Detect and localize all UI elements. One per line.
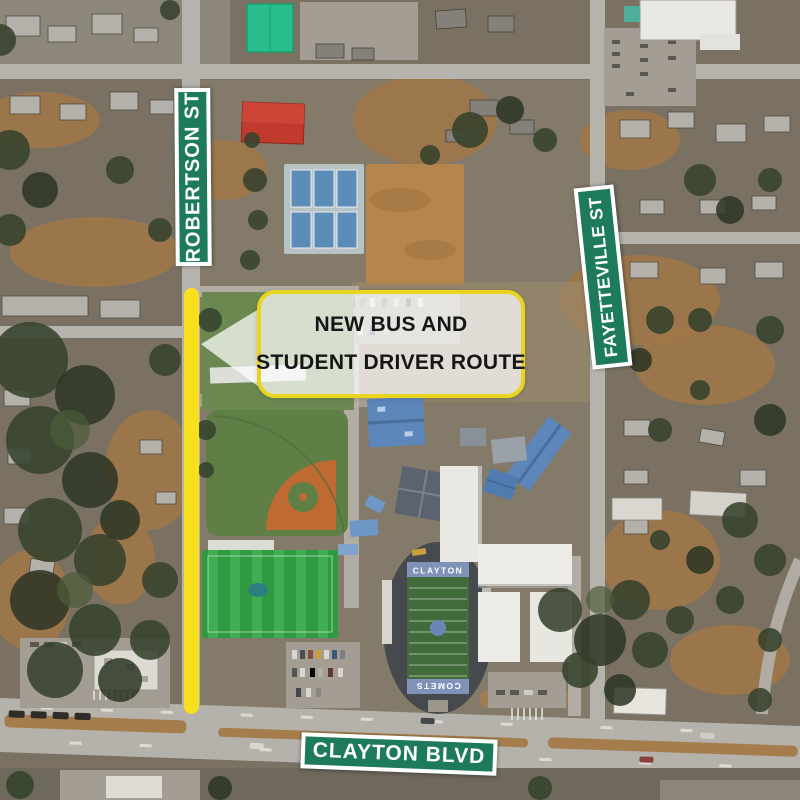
baseball-field (206, 410, 348, 536)
street-sign-robertson-label: ROBERTSON ST (181, 91, 205, 262)
tennis-courts (284, 164, 364, 254)
callout-line-1: NEW BUS AND (314, 306, 467, 344)
new-route-highlight-line (184, 288, 199, 714)
street-sign-robertson: ROBERTSON ST (174, 88, 212, 266)
street-sign-clayton-blvd-label: CLAYTON BLVD (312, 739, 485, 770)
soccer-field (202, 550, 338, 638)
football-endzone-home-label: CLAYTON (413, 566, 464, 576)
route-map-graphic: CLAYTON COMETS (0, 0, 800, 800)
football-endzone-visitor-label: COMETS (415, 681, 460, 691)
street-sign-fayetteville-label: FAYETTEVILLE ST (584, 196, 622, 359)
callout-line-2: STUDENT DRIVER ROUTE (256, 344, 526, 382)
callout-box: NEW BUS AND STUDENT DRIVER ROUTE (257, 290, 525, 398)
aerial-map: CLAYTON COMETS (0, 0, 800, 800)
dirt-field (366, 164, 464, 284)
street-sign-clayton-blvd: CLAYTON BLVD (300, 732, 497, 775)
